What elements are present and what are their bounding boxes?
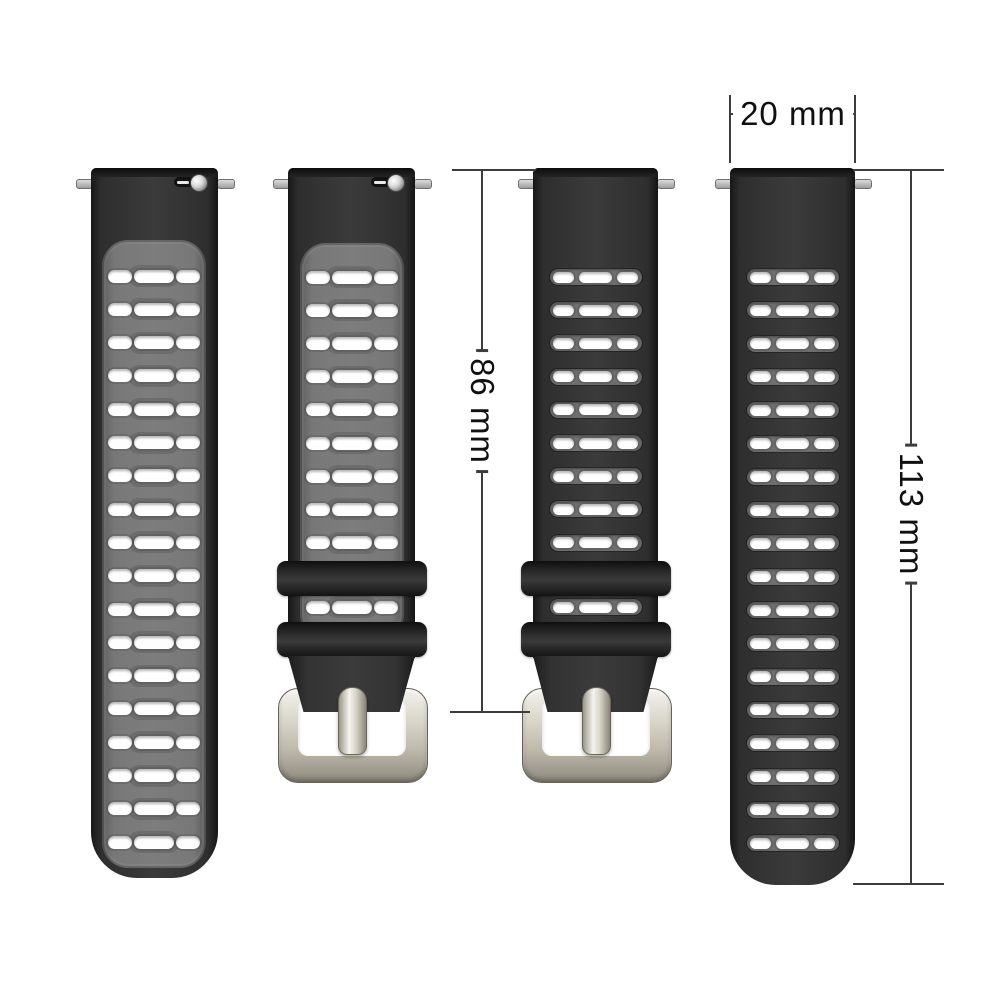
strap-hole <box>776 838 809 849</box>
strap-hole <box>306 403 330 416</box>
strap-hole <box>776 338 809 349</box>
strap-hole <box>108 369 132 382</box>
strap-hole <box>374 370 398 383</box>
strap-hole <box>750 272 771 283</box>
strap-hole <box>579 371 612 382</box>
strap-hole <box>750 571 771 582</box>
strap-hole <box>108 336 132 349</box>
strap-hole <box>553 404 574 415</box>
strap-hole <box>306 470 330 483</box>
spring-bar-pin <box>217 179 235 189</box>
strap-hole <box>134 736 174 749</box>
strap-hole <box>750 371 771 382</box>
strap-hole <box>134 836 174 849</box>
strap-hole <box>332 403 372 416</box>
strap-hole <box>579 404 612 415</box>
strap-hole <box>617 272 638 283</box>
strap-hole <box>108 736 132 749</box>
strap-hole <box>108 436 132 449</box>
strap-hole <box>776 704 809 715</box>
strap-hole <box>176 270 200 283</box>
strap-hole <box>176 536 200 549</box>
strap-hole <box>108 702 132 715</box>
strap-hole <box>176 569 200 582</box>
strap-hole <box>814 771 835 782</box>
strap-hole <box>332 601 372 614</box>
keeper-loop <box>521 622 671 657</box>
strap-hole <box>306 370 330 383</box>
strap-hole <box>553 371 574 382</box>
strap-hole <box>617 371 638 382</box>
keeper-loop <box>277 561 427 596</box>
dimension-buckle-strap-ext-bottom <box>450 711 530 713</box>
strap-hole <box>814 438 835 449</box>
strap-hole <box>108 303 132 316</box>
dimension-width-tick-right <box>854 95 856 163</box>
strap-hole <box>108 769 132 782</box>
strap-hole <box>750 305 771 316</box>
strap-hole <box>134 436 174 449</box>
dimension-buckle-strap-label: 86 mm <box>464 351 500 471</box>
dimension-buckle-strap-ext-top <box>452 169 536 171</box>
dimension-width-label: 20 mm <box>733 96 853 132</box>
strap-hole <box>108 503 132 516</box>
strap-hole <box>776 571 809 582</box>
strap-hole <box>579 272 612 283</box>
strap-hole <box>776 438 809 449</box>
strap-hole <box>374 337 398 350</box>
quick-release-knob-icon <box>387 174 405 192</box>
strap-hole <box>750 638 771 649</box>
keeper-loop <box>521 561 671 596</box>
strap-hole <box>553 471 574 482</box>
strap-hole <box>134 369 174 382</box>
strap-hole <box>176 303 200 316</box>
strap-hole <box>108 836 132 849</box>
strap-hole <box>374 536 398 549</box>
strap-hole <box>374 304 398 317</box>
strap-hole <box>617 338 638 349</box>
strap-hole <box>750 738 771 749</box>
strap-hole <box>750 838 771 849</box>
strap-hole <box>814 638 835 649</box>
strap-hole <box>776 671 809 682</box>
strap-hole <box>750 605 771 616</box>
strap-hole <box>776 305 809 316</box>
strap-hole <box>814 671 835 682</box>
strap-hole <box>814 605 835 616</box>
buckle-prong <box>338 687 367 755</box>
strap-hole <box>374 271 398 284</box>
quick-release-knob-icon <box>190 174 208 192</box>
strap-hole <box>306 536 330 549</box>
strap-hole <box>553 537 574 548</box>
strap-hole <box>579 305 612 316</box>
strap-hole <box>176 336 200 349</box>
strap-hole <box>579 438 612 449</box>
strap-hole <box>776 272 809 283</box>
strap-hole <box>108 603 132 616</box>
strap-hole <box>750 771 771 782</box>
strap-hole <box>176 769 200 782</box>
strap-hole <box>374 437 398 450</box>
strap-hole <box>750 505 771 516</box>
strap-hole <box>553 338 574 349</box>
strap-hole <box>108 403 132 416</box>
strap-hole <box>374 503 398 516</box>
quick-release-groove <box>177 181 189 184</box>
strap-hole <box>374 403 398 416</box>
strap-hole <box>750 804 771 815</box>
strap-hole <box>617 471 638 482</box>
strap-hole <box>617 404 638 415</box>
strap-hole <box>750 405 771 416</box>
strap-hole <box>134 270 174 283</box>
strap-hole <box>814 704 835 715</box>
strap-hole <box>176 669 200 682</box>
strap-hole <box>814 338 835 349</box>
strap-hole <box>176 403 200 416</box>
strap-hole <box>306 304 330 317</box>
strap-hole <box>750 438 771 449</box>
strap-hole <box>176 702 200 715</box>
strap-hole <box>814 505 835 516</box>
strap-hole <box>332 503 372 516</box>
strap-hole <box>108 802 132 815</box>
strap-hole <box>108 636 132 649</box>
buckle-prong <box>582 687 611 755</box>
strap-hole <box>750 538 771 549</box>
strap-hole <box>750 338 771 349</box>
strap-hole <box>579 602 612 613</box>
strap-hole <box>332 536 372 549</box>
strap-hole <box>776 405 809 416</box>
strap-hole <box>176 603 200 616</box>
strap-hole <box>176 436 200 449</box>
strap-hole <box>374 601 398 614</box>
strap-hole <box>306 437 330 450</box>
product-diagram: 20 mm 86 mm 113 mm <box>0 0 1000 1000</box>
strap-hole <box>814 471 835 482</box>
strap-hole <box>776 538 809 549</box>
strap-hole <box>814 272 835 283</box>
strap-hole <box>814 305 835 316</box>
dimension-long-strap-label: 113 mm <box>893 446 929 583</box>
strap-hole <box>306 271 330 284</box>
strap-hole <box>814 804 835 815</box>
strap-hole <box>776 471 809 482</box>
strap-hole <box>134 769 174 782</box>
strap-hole <box>617 504 638 515</box>
strap-hole <box>579 504 612 515</box>
strap-hole <box>332 304 372 317</box>
strap-hole <box>306 337 330 350</box>
strap-hole <box>617 537 638 548</box>
strap-hole <box>579 338 612 349</box>
strap-hole <box>750 704 771 715</box>
strap-hole <box>176 636 200 649</box>
strap-hole <box>108 669 132 682</box>
strap-hole <box>776 605 809 616</box>
strap-hole <box>617 305 638 316</box>
strap-hole <box>332 370 372 383</box>
spring-bar-pin <box>854 179 872 189</box>
strap-hole <box>814 405 835 416</box>
strap-hole <box>814 538 835 549</box>
quick-release-groove <box>374 181 386 184</box>
strap-hole <box>134 503 174 516</box>
strap-hole <box>814 738 835 749</box>
strap-hole <box>776 738 809 749</box>
strap-hole <box>176 802 200 815</box>
strap-hole <box>332 437 372 450</box>
strap-hole <box>108 536 132 549</box>
strap-hole <box>134 336 174 349</box>
strap-hole <box>176 503 200 516</box>
strap-hole <box>134 603 174 616</box>
strap-hole <box>176 369 200 382</box>
strap-hole <box>176 836 200 849</box>
strap-hole <box>108 569 132 582</box>
strap-hole <box>134 669 174 682</box>
keeper-loop <box>277 622 427 657</box>
strap-hole <box>332 337 372 350</box>
strap-hole <box>306 601 330 614</box>
strap-hole <box>134 403 174 416</box>
strap-hole <box>134 802 174 815</box>
strap-hole <box>814 571 835 582</box>
strap-hole <box>553 305 574 316</box>
strap-hole <box>134 702 174 715</box>
strap-hole <box>134 469 174 482</box>
strap-hole <box>776 505 809 516</box>
spring-bar-pin <box>414 179 432 189</box>
spring-bar-pin <box>657 179 675 189</box>
strap-hole <box>776 638 809 649</box>
strap-hole <box>750 671 771 682</box>
strap-hole <box>617 602 638 613</box>
strap-hole <box>776 804 809 815</box>
dimension-long-strap-ext-bottom <box>853 883 944 885</box>
strap-hole <box>579 471 612 482</box>
strap-hole <box>553 602 574 613</box>
strap-hole <box>108 270 132 283</box>
strap-hole <box>134 636 174 649</box>
strap-hole <box>776 371 809 382</box>
dimension-width-tick-left <box>729 95 731 163</box>
strap-hole <box>134 303 174 316</box>
strap-hole <box>374 470 398 483</box>
strap-hole <box>553 504 574 515</box>
strap-hole <box>332 271 372 284</box>
strap-hole <box>176 469 200 482</box>
strap-hole <box>814 838 835 849</box>
strap-hole <box>750 471 771 482</box>
strap-hole <box>617 438 638 449</box>
strap-head-edge <box>533 168 658 177</box>
strap-hole <box>553 272 574 283</box>
strap-head-edge <box>730 168 855 177</box>
strap-hole <box>306 503 330 516</box>
dimension-long-strap-ext-top <box>853 169 944 171</box>
strap-hole <box>176 736 200 749</box>
strap-hole <box>776 771 809 782</box>
strap-hole <box>332 470 372 483</box>
strap-hole <box>553 438 574 449</box>
strap-hole <box>108 469 132 482</box>
strap-hole <box>134 569 174 582</box>
strap-hole <box>134 536 174 549</box>
strap-hole <box>814 371 835 382</box>
strap-hole <box>579 537 612 548</box>
